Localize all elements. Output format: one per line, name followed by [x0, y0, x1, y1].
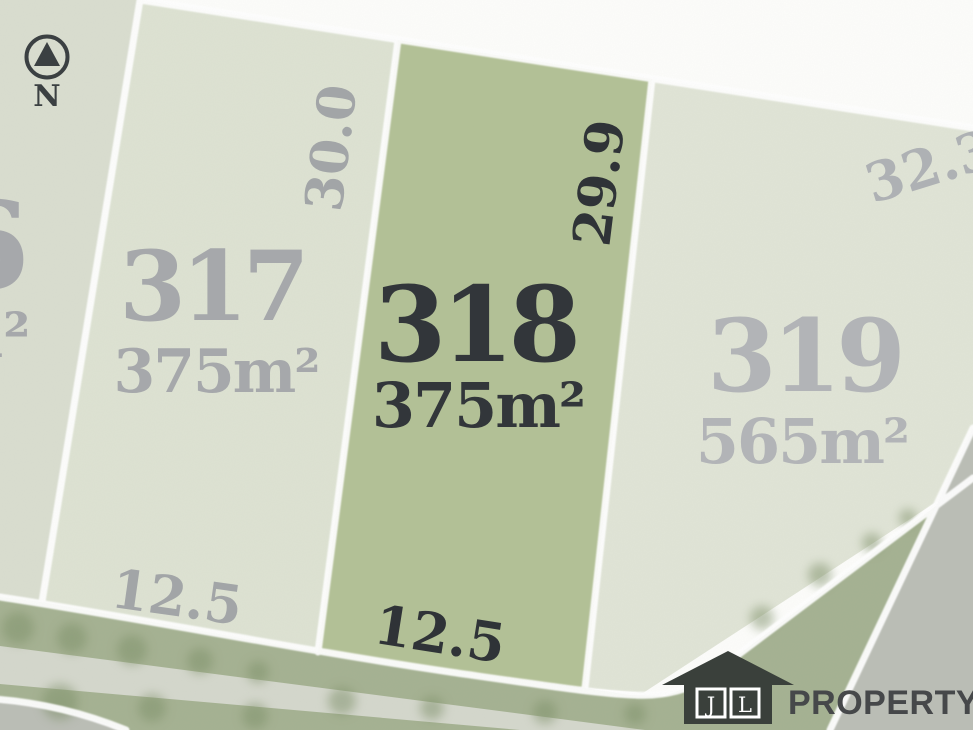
- lot319-area: 565m²: [696, 411, 908, 473]
- logo-wordmark: PROPERTY: [788, 686, 973, 720]
- lot316-number-partial: 6: [0, 187, 30, 307]
- lot317-frontage-dimension: 12.5: [108, 561, 246, 633]
- subdivision-plan: J L N 6 m² 317 375m² 30.0 12.5 318 375m²…: [0, 0, 973, 730]
- logo-initial-l: L: [738, 693, 752, 717]
- lot318-area: 375m²: [372, 375, 584, 437]
- lot317-area: 375m²: [113, 342, 318, 402]
- lot319-number: 319: [707, 306, 901, 406]
- lot316-area-partial: m²: [0, 305, 30, 367]
- lot318-number: 318: [374, 273, 576, 377]
- north-label: N: [33, 82, 60, 112]
- lot317-number: 317: [119, 239, 304, 335]
- lot317-side-dimension: 30.0: [298, 82, 365, 214]
- lot318-side-dimension: 29.9: [566, 117, 633, 249]
- logo-initial-j: J: [705, 693, 715, 717]
